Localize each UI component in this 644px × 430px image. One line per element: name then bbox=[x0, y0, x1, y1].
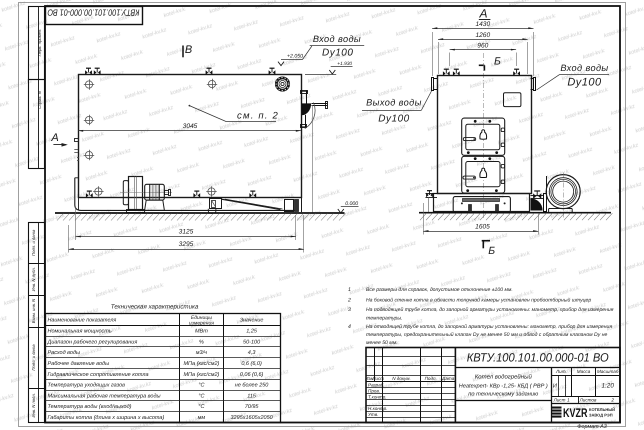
svg-text:Котел водогрейный: Котел водогрейный bbox=[475, 374, 533, 381]
svg-text:Dy100: Dy100 bbox=[567, 77, 602, 89]
svg-text:KVZR: KVZR bbox=[563, 406, 588, 420]
svg-text:Все размеры для справок, допус: Все размеры для справок, допустимое откл… bbox=[366, 287, 513, 293]
svg-text:1430: 1430 bbox=[475, 21, 490, 28]
svg-text:Подп.: Подп. bbox=[425, 376, 437, 381]
svg-text:менее 50 мм.: менее 50 мм. bbox=[366, 340, 398, 346]
svg-text:Выход воды: Выход воды bbox=[366, 98, 422, 108]
svg-text:3: 3 bbox=[348, 307, 351, 313]
svg-text:Н.контр.: Н.контр. bbox=[368, 406, 387, 411]
svg-text:Утв.: Утв. bbox=[368, 412, 378, 417]
svg-text:мм: мм bbox=[198, 415, 206, 421]
svg-text:50-100: 50-100 bbox=[243, 339, 261, 345]
svg-text:Наименование показателя: Наименование показателя bbox=[48, 317, 117, 323]
svg-text:На боковой стенке котла в обла: На боковой стенке котла в области топочн… bbox=[366, 297, 591, 303]
svg-text:КВТУ.100.101.00.000-01 ВО: КВТУ.100.101.00.000-01 ВО bbox=[48, 7, 140, 17]
svg-text:Вход воды: Вход воды bbox=[313, 34, 361, 44]
svg-text:На подводящей трубе котла, до: На подводящей трубе котла, до запорной а… bbox=[366, 307, 614, 313]
svg-text:Перв. примен.: Перв. примен. bbox=[37, 29, 42, 57]
svg-text:115: 115 bbox=[247, 393, 257, 399]
svg-text:Гидравлическое сопротивление к: Гидравлическое сопротивление котла bbox=[48, 372, 149, 378]
svg-text:МВт: МВт bbox=[195, 329, 208, 335]
svg-text:1:20: 1:20 bbox=[601, 383, 614, 390]
svg-text:Пров.: Пров. bbox=[368, 388, 380, 393]
svg-text:1,25: 1,25 bbox=[246, 329, 258, 335]
svg-text:3125: 3125 bbox=[179, 229, 194, 236]
svg-text:Расход воды: Расход воды bbox=[48, 350, 81, 356]
svg-text:см. п. 2: см. п. 2 bbox=[237, 111, 279, 122]
svg-text:Номинальная мощность: Номинальная мощность bbox=[48, 329, 112, 335]
svg-text:Диапазон рабочего регулировани: Диапазон рабочего регулирования bbox=[47, 338, 138, 345]
svg-text:1605: 1605 bbox=[475, 223, 490, 230]
svg-text:измерения: измерения bbox=[189, 320, 214, 326]
svg-text:Инв. N дубл.: Инв. N дубл. bbox=[31, 267, 36, 291]
svg-text:3045: 3045 bbox=[183, 123, 198, 130]
svg-text:2: 2 bbox=[610, 398, 614, 403]
svg-text:ЗАВОД РЭП: ЗАВОД РЭП bbox=[589, 412, 613, 417]
svg-text:Листов: Листов bbox=[579, 398, 597, 403]
svg-text:Б: Б bbox=[488, 245, 495, 257]
svg-text:Инв. N подл.: Инв. N подл. bbox=[31, 393, 36, 417]
svg-text:Лит.: Лит. bbox=[555, 369, 567, 374]
svg-text:по техническому заданию: по техническому заданию bbox=[468, 391, 539, 398]
svg-text:70/95: 70/95 bbox=[245, 404, 260, 410]
svg-text:°С: °С bbox=[198, 404, 204, 410]
svg-text:Масса: Масса bbox=[577, 369, 591, 374]
svg-text:°С: °С bbox=[198, 393, 204, 399]
svg-text:3295: 3295 bbox=[179, 241, 194, 248]
svg-text:1260: 1260 bbox=[475, 32, 490, 39]
svg-text:Справ. N: Справ. N bbox=[37, 90, 42, 108]
svg-text:В: В bbox=[185, 44, 192, 56]
svg-text:Максимальная рабочая температу: Максимальная рабочая температура воды bbox=[48, 392, 161, 399]
svg-text:1: 1 bbox=[348, 287, 351, 293]
svg-text:0,6 (6,0): 0,6 (6,0) bbox=[241, 361, 262, 367]
svg-text:Формат А3: Формат А3 bbox=[577, 424, 607, 430]
svg-text:Значение: Значение bbox=[240, 317, 264, 323]
svg-text:N докум.: N докум. bbox=[392, 376, 411, 381]
svg-text:Дата: Дата bbox=[441, 376, 455, 381]
svg-text:МПа (кгс/см2): МПа (кгс/см2) bbox=[183, 361, 219, 367]
svg-text:%: % bbox=[199, 339, 204, 345]
svg-text:4,3: 4,3 bbox=[248, 350, 257, 356]
svg-text:+2.050: +2.050 bbox=[287, 54, 303, 60]
svg-text:Подп. и дата: Подп. и дата bbox=[31, 229, 36, 256]
svg-text:Dy100: Dy100 bbox=[378, 114, 409, 125]
svg-text:Лист: Лист bbox=[371, 376, 384, 381]
svg-text:3295х1605х2050: 3295х1605х2050 bbox=[230, 415, 273, 421]
svg-text:1: 1 bbox=[567, 398, 570, 403]
svg-text:Dy100: Dy100 bbox=[322, 47, 353, 58]
svg-text:°С: °С bbox=[198, 383, 204, 389]
svg-text:Температура воды (вход/выход): Температура воды (вход/выход) bbox=[48, 404, 132, 410]
svg-text:960: 960 bbox=[477, 43, 488, 50]
svg-text:КВТУ.100.101.00.000-01 ВО: КВТУ.100.101.00.000-01 ВО bbox=[467, 351, 609, 365]
svg-text:м3/ч: м3/ч bbox=[196, 350, 207, 356]
svg-text:Техническая характеристика: Техническая характеристика bbox=[111, 304, 199, 311]
svg-text:Подп. и дата: Подп. и дата bbox=[31, 344, 36, 371]
svg-text:А: А bbox=[50, 132, 58, 144]
svg-text:Разраб.: Разраб. bbox=[368, 382, 385, 387]
svg-text:МПа (кгс/см2): МПа (кгс/см2) bbox=[183, 372, 219, 378]
svg-text:Лист: Лист bbox=[553, 398, 566, 403]
svg-text:2: 2 bbox=[347, 297, 351, 303]
svg-text:А: А bbox=[478, 7, 487, 21]
svg-text:Габариты котла (длина х ширина: Габариты котла (длина х ширина х высота) bbox=[48, 414, 165, 421]
svg-text:Т.контр.: Т.контр. bbox=[368, 394, 387, 399]
svg-text:Масштаб: Масштаб bbox=[597, 369, 619, 374]
svg-text:Heatexpert- КВр -1,25- КБД ( Р: Heatexpert- КВр -1,25- КБД ( РВР ) bbox=[459, 383, 548, 390]
svg-text:+1.930: +1.930 bbox=[337, 61, 352, 67]
svg-text:КОТЕЛЬНЫЙ: КОТЕЛЬНЫЙ bbox=[589, 407, 615, 412]
svg-text:Б: Б bbox=[494, 56, 501, 68]
svg-text:не более 250: не более 250 bbox=[235, 382, 270, 389]
svg-text:Взам. инв. N: Взам. инв. N bbox=[31, 298, 36, 323]
svg-text:температуры, предохранительный: температуры, предохранительный клапан Dу… bbox=[366, 332, 608, 338]
svg-text:температуры.: температуры. bbox=[366, 315, 403, 321]
svg-text:4: 4 bbox=[348, 324, 351, 330]
svg-text:Вход воды: Вход воды bbox=[560, 63, 608, 73]
svg-text:0,06 (0,6): 0,06 (0,6) bbox=[240, 372, 264, 378]
svg-text:На отводящей трубе котла, до з: На отводящей трубе котла, до запорной ар… bbox=[366, 324, 612, 330]
svg-text:Рабочее давление воды: Рабочее давление воды bbox=[48, 360, 110, 367]
svg-text:Температура уходящих газов: Температура уходящих газов bbox=[48, 383, 126, 389]
